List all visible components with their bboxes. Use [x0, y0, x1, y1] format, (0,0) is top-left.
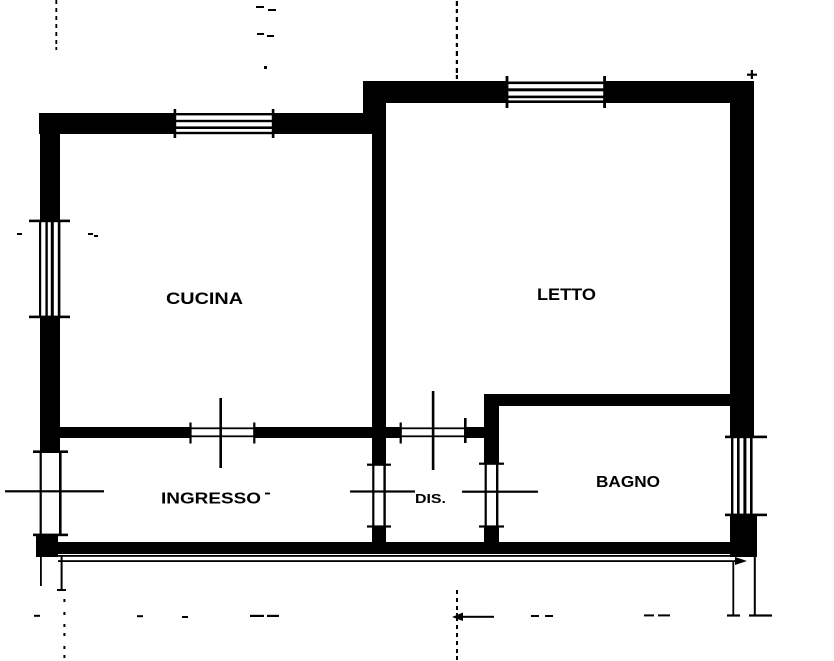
svg-text:LETTO: LETTO	[537, 285, 596, 304]
svg-text:DIS.: DIS.	[415, 491, 446, 506]
svg-text:BAGNO: BAGNO	[596, 474, 660, 491]
svg-text:CUCINA: CUCINA	[166, 289, 243, 308]
svg-text:INGRESSO: INGRESSO	[161, 491, 261, 508]
